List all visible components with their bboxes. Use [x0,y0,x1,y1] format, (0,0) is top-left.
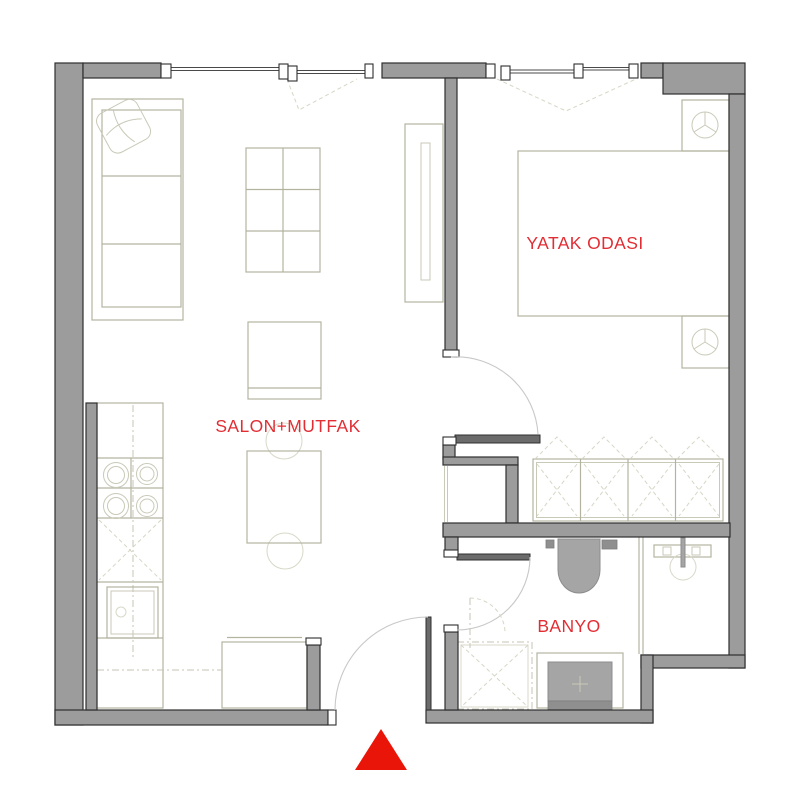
cap-bottom-wall [328,710,336,725]
washing-machine [457,642,532,709]
cap-bath-door-top [444,550,458,557]
tv-cabinet [405,124,443,302]
kitchen-counter [97,403,222,708]
window-bedroom [486,64,638,80]
wall-top-a [83,63,161,78]
wall-bath-left-lower [445,632,458,710]
dining-chairs [266,423,303,569]
bedroom-door-swing [451,357,538,434]
wall-step-horizontal [641,655,745,668]
kitchen-sink [99,520,161,580]
shaft-niche [445,466,448,522]
nightstand-bottom [682,316,729,368]
cap-bedroom-stub [443,437,456,445]
wall-right [729,94,745,668]
wall-entry-stub [307,645,320,710]
wall-kitchen-lining [86,403,97,710]
entry-door-swing [335,617,428,710]
floor-plan: YATAK ODASI SALON+MUTFAK BANYO [0,0,800,800]
bedroom-label: YATAK ODASI [526,233,643,253]
window-living [161,64,373,81]
cap-partition-end [443,350,459,357]
cap-bath-door-bottom [444,625,458,632]
window-swing-bedroom [497,79,636,111]
wall-bottom-left [55,710,328,725]
wall-bath-top [443,523,730,537]
dining-table [247,451,321,543]
window-swing-left [287,79,357,110]
wall-bath-bottom [426,710,653,723]
wall-left [55,63,83,725]
wall-top-right-block [663,63,745,94]
bathroom-label: BANYO [537,616,600,636]
sofa [92,99,183,320]
shelf-table [246,148,320,272]
entry-door-leaf [426,617,431,710]
wardrobe [533,437,723,521]
wall-hall-h [443,457,518,465]
nightstand-top [682,100,729,151]
living-kitchen-label: SALON+MUTFAK [215,416,360,436]
entrance-triangle-icon [355,729,407,770]
sideboard [222,638,307,709]
wall-hall-v2 [506,465,518,523]
shower-glass-divider [639,537,643,654]
floor-plan-drawing: YATAK ODASI SALON+MUTFAK BANYO [0,0,800,800]
wall-top-c [641,63,663,78]
shower-tray [537,653,623,710]
bathroom-door-swing [457,557,530,630]
bathroom-door-leaf [457,554,530,560]
toilet [546,539,617,593]
wall-bath-left-upper [445,537,458,551]
bathroom-sink [654,538,711,580]
wall-partition-bedroom [445,78,457,351]
armchair [248,322,321,399]
bedroom-door-leaf [455,435,540,443]
cap-entry-stub [306,638,321,645]
wall-top-b [382,63,486,78]
